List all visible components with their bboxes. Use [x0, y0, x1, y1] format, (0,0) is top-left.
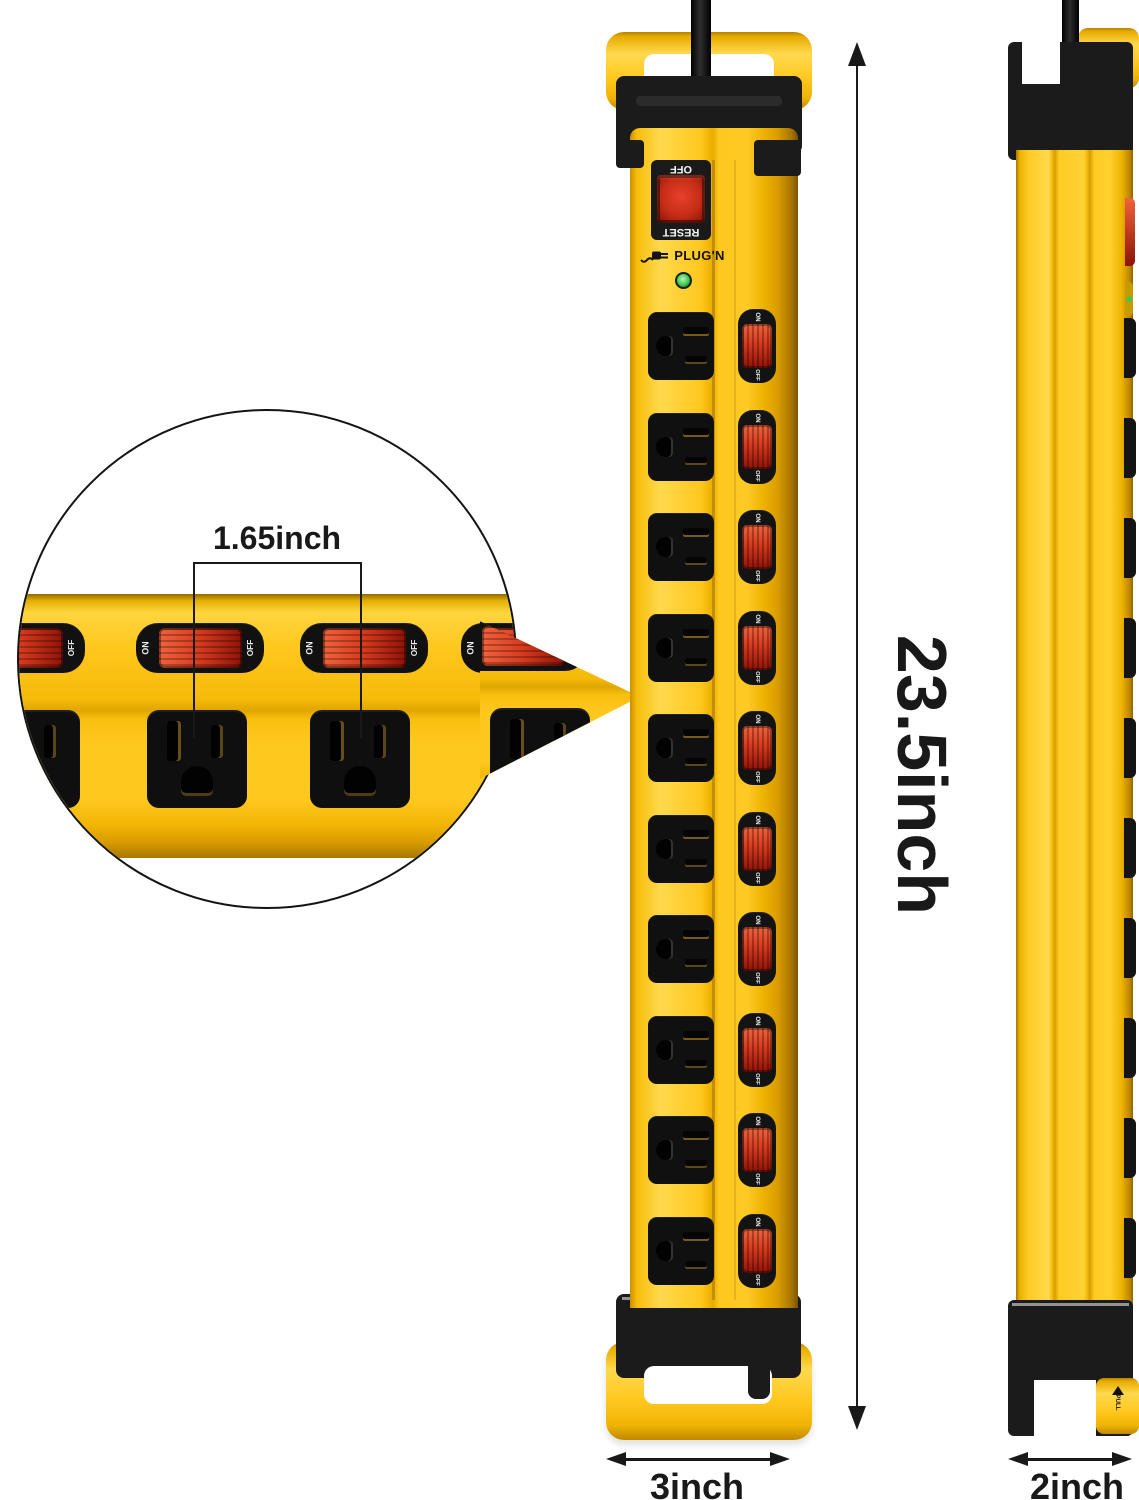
pull-label: PULL	[1114, 1389, 1121, 1416]
outlet-ground-hole	[656, 638, 673, 658]
switch-rocker	[159, 628, 242, 668]
reset-label: RESET	[651, 226, 711, 237]
outlet-hot-slot	[44, 725, 56, 758]
depth-arrow-left	[1008, 1452, 1028, 1466]
outlet-neutral-slot	[683, 528, 709, 537]
rocker-switch[interactable]: ON OFF	[738, 812, 776, 886]
switch-on-label: ON	[754, 714, 760, 723]
outlet[interactable]	[648, 312, 714, 380]
switch-on-label: ON	[754, 815, 760, 824]
switch-on-label: ON	[754, 413, 760, 422]
switch-off-label: OFF	[754, 1073, 760, 1085]
side-switch-bump	[1124, 418, 1136, 478]
width-label: 3inch	[637, 1466, 757, 1500]
side-switch-bump	[1124, 318, 1136, 378]
outlet-spacing-label: 1.65inch	[197, 520, 357, 557]
height-arrow-down	[848, 1406, 866, 1430]
rocker-switch: ON OFF	[136, 623, 264, 673]
product-dimension-diagram: ON OFF ON OFF ON OFF ON OFF	[0, 0, 1139, 1500]
side-switch-bumps	[1124, 318, 1136, 1278]
outlet[interactable]	[648, 513, 714, 581]
switch-off-label: OFF	[754, 671, 760, 683]
side-switch-bump	[1124, 718, 1136, 778]
side-switch-bump	[1124, 618, 1136, 678]
outlet-switch-row: ON OFF	[630, 815, 798, 916]
switch-on-label: ON	[754, 1016, 760, 1025]
switch-off-label: OFF	[754, 1274, 760, 1286]
outlet-switch-row: ON OFF	[630, 1116, 798, 1217]
outlet-hot-slot	[685, 959, 707, 967]
outlet-neutral-slot	[683, 1232, 709, 1241]
switch-on-label: ON	[754, 614, 760, 623]
callout-pointer: ON OFF	[480, 618, 640, 782]
rocker-switch[interactable]: ON OFF	[738, 711, 776, 785]
outlet-ground-hole	[656, 738, 673, 758]
outlet	[147, 710, 247, 808]
side-led-dot	[1126, 296, 1132, 302]
outlet-ground-hole	[656, 537, 673, 557]
outlet[interactable]	[648, 614, 714, 682]
rocker-switch[interactable]: ON OFF	[738, 410, 776, 484]
detail-callout-circle: ON OFF ON OFF ON OFF ON OFF	[17, 409, 517, 909]
side-switch-bump	[1124, 918, 1136, 978]
side-switch-bump	[1124, 1018, 1136, 1078]
outlet[interactable]	[648, 714, 714, 782]
rocker-switch[interactable]: ON OFF	[738, 912, 776, 986]
outlet-switch-row: ON OFF	[630, 312, 798, 413]
height-label: 23.5inch	[890, 625, 954, 925]
outlet-neutral-slot	[683, 930, 709, 939]
switch-rocker	[742, 827, 772, 871]
side-bottom-bracket-notch	[1034, 1380, 1096, 1436]
outlet-hot-slot	[685, 1160, 707, 1168]
rocker-switch[interactable]: ON OFF	[738, 611, 776, 685]
switch-rocker	[323, 628, 406, 668]
rocker-switch[interactable]: ON OFF	[738, 510, 776, 584]
outlet-ground-hole	[17, 766, 46, 796]
outlet-neutral-slot	[683, 327, 709, 336]
outlet-hot-slot	[685, 457, 707, 465]
outlet-hot-slot	[685, 557, 707, 565]
side-body	[1016, 150, 1133, 1308]
depth-dimension-line	[1026, 1458, 1114, 1461]
switch-rocker	[742, 525, 772, 569]
plug-icon	[639, 248, 671, 263]
rocker-switch[interactable]: ON OFF	[738, 1113, 776, 1187]
switch-off-label: OFF	[754, 369, 760, 381]
outlet-switch-row: ON OFF	[630, 1016, 798, 1117]
outlet-neutral-slot	[683, 629, 709, 638]
side-top-bracket-notch	[1022, 36, 1060, 84]
outlet-ground-hole	[656, 437, 673, 457]
outlet-neutral-slot	[683, 729, 709, 738]
switch-rocker	[742, 927, 772, 971]
outlet[interactable]	[648, 1217, 714, 1285]
outlet[interactable]	[648, 815, 714, 883]
outlet-switch-row: ON OFF	[630, 915, 798, 1016]
height-dimension-line	[856, 60, 858, 1412]
outlet-neutral-slot	[683, 1031, 709, 1040]
outlet-neutral-slot	[683, 428, 709, 437]
front-outlet-rows: ON OFF ON OFF ON OFF	[630, 312, 798, 1317]
outlet-neutral-slot	[683, 830, 709, 839]
rocker-switch[interactable]: ON OFF	[738, 1214, 776, 1288]
outlet-switch-row: ON OFF	[630, 1217, 798, 1318]
switch-on-label: ON	[754, 312, 760, 321]
front-top-bracket-arm	[754, 140, 801, 176]
rocker-switch: ON OFF	[17, 623, 85, 673]
switch-rocker	[742, 626, 772, 670]
outlet-ground-hole	[656, 1140, 673, 1160]
switch-rocker	[742, 1028, 772, 1072]
brand-text: PLUG'N	[674, 248, 724, 263]
switch-off-label: OFF	[68, 640, 76, 657]
outlet-switch-row: ON OFF	[630, 413, 798, 514]
outlet-ground-hole	[656, 336, 673, 356]
power-cord	[691, 0, 711, 86]
side-switch-bump	[1124, 818, 1136, 878]
outlet-switch-row: ON OFF	[630, 614, 798, 715]
reset-off-label: OFF	[651, 163, 711, 174]
switch-rocker	[742, 425, 772, 469]
outlet-hot-slot	[685, 758, 707, 766]
switch-off-label: OFF	[754, 872, 760, 884]
switch-off-label: OFF	[754, 470, 760, 482]
outlet-switch-row: ON OFF	[630, 513, 798, 614]
switch-rocker	[742, 1229, 772, 1273]
switch-off-label: OFF	[754, 570, 760, 582]
front-bottom-hook	[748, 1366, 770, 1399]
outlet-hot-slot	[685, 356, 707, 364]
rocker-switch: ON OFF	[300, 623, 428, 673]
switch-rocker	[742, 726, 772, 770]
switch-on-label: ON	[754, 1217, 760, 1226]
side-switch-bump	[1124, 1118, 1136, 1178]
switch-on-label: ON	[754, 915, 760, 924]
front-top-bracket-slot	[636, 96, 782, 106]
outlet-ground-hole	[656, 839, 673, 859]
switch-rocker	[742, 324, 772, 368]
switch-on-label: ON	[754, 1116, 760, 1125]
outlet-hot-slot	[685, 658, 707, 666]
side-reset-profile	[1125, 198, 1135, 266]
depth-arrow-right	[1112, 1452, 1132, 1466]
outlet-hot-slot	[685, 859, 707, 867]
width-arrow-left	[606, 1452, 626, 1466]
front-top-bracket-arm	[616, 140, 644, 168]
reset-rocker[interactable]	[657, 175, 705, 223]
side-pull-tab[interactable]: PULL	[1096, 1378, 1139, 1434]
switch-off-label: OFF	[754, 972, 760, 984]
depth-label: 2inch	[1017, 1466, 1137, 1500]
rocker-switch[interactable]: ON OFF	[738, 1013, 776, 1087]
outlet-neutral-slot	[683, 1131, 709, 1140]
switch-off-label: OFF	[754, 771, 760, 783]
side-switch-bump	[1124, 1218, 1136, 1278]
outlet-ground-hole	[656, 1241, 673, 1261]
outlet-ground-hole	[656, 939, 673, 959]
outlet[interactable]	[648, 1116, 714, 1184]
callout-strip-body	[17, 594, 517, 858]
side-bottom-bracket-edge	[1012, 1303, 1129, 1306]
width-dimension-line	[624, 1458, 772, 1461]
width-arrow-right	[770, 1452, 790, 1466]
outlet-ground-hole	[656, 1040, 673, 1060]
side-switch-bump	[1124, 518, 1136, 578]
switch-off-label: OFF	[754, 1173, 760, 1185]
reset-breaker[interactable]: OFF RESET	[651, 160, 711, 240]
outlet-hot-slot	[685, 1060, 707, 1068]
brand-logo: PLUG'N	[626, 246, 738, 264]
outlet-switch-row: ON OFF	[630, 714, 798, 815]
outlet	[17, 710, 80, 808]
switch-on-label: ON	[754, 513, 760, 522]
outlet[interactable]	[648, 915, 714, 983]
outlet-hot-slot	[685, 1261, 707, 1269]
switch-rocker	[742, 1128, 772, 1172]
rocker-switch[interactable]: ON OFF	[738, 309, 776, 383]
outlet[interactable]	[648, 413, 714, 481]
outlet[interactable]	[648, 1016, 714, 1084]
outlet-spacing-bracket	[194, 562, 362, 564]
power-led	[675, 272, 692, 289]
switch-rocker	[17, 628, 63, 668]
